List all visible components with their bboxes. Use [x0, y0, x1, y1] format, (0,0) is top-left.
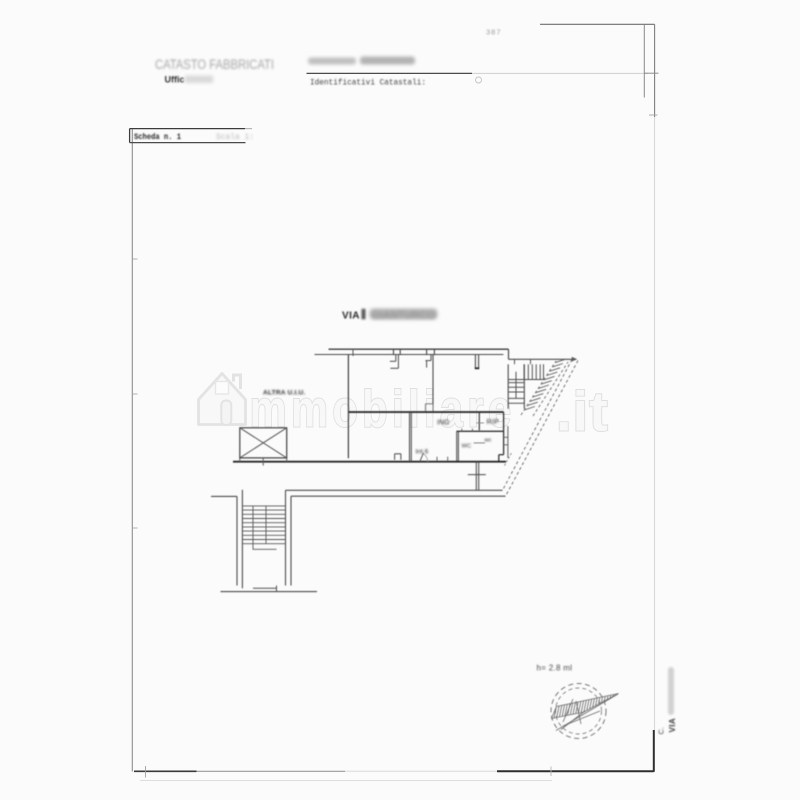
svg-text:C.: C. [657, 727, 666, 735]
svg-text:VIA: VIA [668, 718, 677, 733]
svg-text:RIP: RIP [487, 419, 500, 426]
svg-text:VIA: VIA [342, 310, 360, 321]
svg-text:CATASTO FABBRICATI: CATASTO FABBRICATI [155, 57, 274, 72]
svg-text:Scala 1:: Scala 1: [216, 132, 254, 142]
svg-text:Int 6: Int 6 [416, 448, 429, 455]
svg-text:GIANTURCO: GIANTURCO [372, 310, 435, 321]
svg-text:wc: wc [484, 437, 492, 443]
svg-text:.it: .it [556, 380, 609, 443]
svg-text:Scheda n. 1: Scheda n. 1 [134, 132, 181, 142]
svg-text:mmobiliare: mmobiliare [250, 379, 516, 438]
svg-text:h= 2.8 ml: h= 2.8 ml [537, 663, 573, 672]
svg-text:ALTRA U.I.U.: ALTRA U.I.U. [263, 390, 306, 397]
svg-text:Identificativi Catastali:: Identificativi Catastali: [310, 78, 426, 88]
svg-text:WC: WC [462, 443, 472, 449]
svg-text:387: 387 [486, 28, 502, 37]
svg-text:ING: ING [437, 419, 449, 426]
svg-text:Uffic: Uffic [165, 75, 185, 85]
